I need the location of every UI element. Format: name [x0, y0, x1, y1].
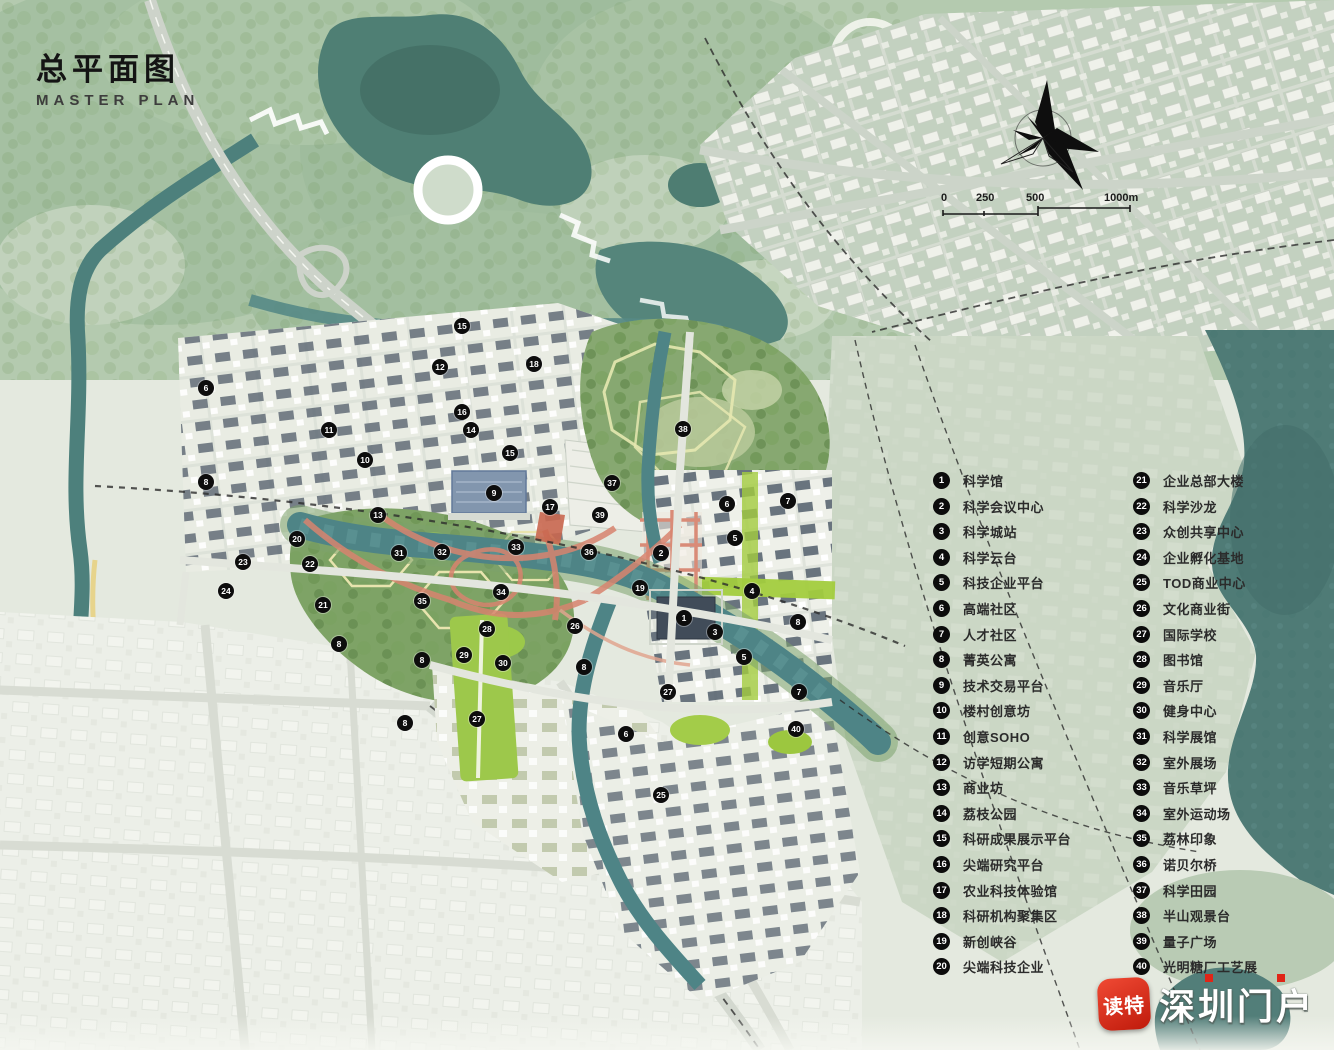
legend-number-badge: 8 — [933, 651, 950, 668]
legend-number-badge: 7 — [933, 626, 950, 643]
legend-number-badge: 26 — [1133, 600, 1150, 617]
legend-item: 14荔枝公园 — [933, 805, 1071, 822]
legend-number-badge: 4 — [933, 549, 950, 566]
legend-number-badge: 14 — [933, 805, 950, 822]
legend-column-right: 21企业总部大楼22科学沙龙23众创共享中心24企业孵化基地25TOD商业中心2… — [1133, 472, 1258, 975]
legend-number-badge: 35 — [1133, 830, 1150, 847]
legend-number-badge: 24 — [1133, 549, 1150, 566]
legend-item: 31科学展馆 — [1133, 728, 1258, 745]
legend-item-label: TOD商业中心 — [1163, 573, 1246, 592]
legend-item-label: 诺贝尔桥 — [1163, 855, 1217, 874]
legend-item-label: 国际学校 — [1163, 625, 1217, 644]
legend-number-badge: 11 — [933, 728, 950, 745]
legend-item: 19新创峡谷 — [933, 933, 1071, 950]
legend-item: 21企业总部大楼 — [1133, 472, 1258, 489]
legend-number-badge: 25 — [1133, 574, 1150, 591]
legend-number-badge: 33 — [1133, 779, 1150, 796]
legend-item: 9技术交易平台 — [933, 677, 1071, 694]
legend-item: 34室外运动场 — [1133, 805, 1258, 822]
page-subtitle: MASTER PLAN — [36, 92, 199, 109]
legend-item-label: 企业孵化基地 — [1163, 548, 1244, 567]
legend-item: 35荔林印象 — [1133, 830, 1258, 847]
legend-number-badge: 36 — [1133, 856, 1150, 873]
legend-item-label: 科技企业平台 — [963, 573, 1044, 592]
legend-item-label: 企业总部大楼 — [1163, 471, 1244, 490]
legend-number-badge: 22 — [1133, 498, 1150, 515]
legend-item: 11创意SOHO — [933, 728, 1071, 745]
master-plan-canvas: 总平面图 MASTER PLAN 0 250 500 1000m 1科学馆2科学… — [0, 0, 1334, 1050]
legend-number-badge: 37 — [1133, 882, 1150, 899]
page-title: 总平面图 — [36, 44, 199, 89]
legend-item-label: 菁英公寓 — [963, 650, 1017, 669]
compass-icon — [985, 78, 1105, 203]
legend-number-badge: 9 — [933, 677, 950, 694]
legend-number-badge: 19 — [933, 933, 950, 950]
scale-bar: 0 250 500 1000m — [938, 192, 1150, 220]
legend-item: 23众创共享中心 — [1133, 523, 1258, 540]
scale-label-500: 500 — [1026, 192, 1044, 204]
legend-item-label: 农业科技体验馆 — [963, 881, 1058, 900]
scale-bar-line — [938, 204, 1138, 218]
legend-item: 28图书馆 — [1133, 651, 1258, 668]
watermark-accent-square — [1277, 974, 1285, 982]
legend-number-badge: 1 — [933, 472, 950, 489]
legend-item-label: 科学田园 — [1163, 881, 1217, 900]
scale-label-0: 0 — [941, 192, 947, 204]
legend-item: 3科学城站 — [933, 523, 1071, 540]
legend-item-label: 技术交易平台 — [963, 676, 1044, 695]
legend-item: 18科研机构聚集区 — [933, 907, 1071, 924]
legend-item: 4科学云台 — [933, 549, 1071, 566]
legend-item: 30健身中心 — [1133, 702, 1258, 719]
legend-item-label: 访学短期公寓 — [963, 753, 1044, 772]
legend-item: 1科学馆 — [933, 472, 1071, 489]
legend-number-badge: 2 — [933, 498, 950, 515]
legend-item: 12访学短期公寓 — [933, 754, 1071, 771]
legend-item: 39量子广场 — [1133, 933, 1258, 950]
legend-item: 24企业孵化基地 — [1133, 549, 1258, 566]
legend-item-label: 荔林印象 — [1163, 829, 1217, 848]
legend-item-label: 科学馆 — [963, 471, 1004, 490]
scale-label-1000: 1000m — [1104, 192, 1138, 204]
legend-item: 25TOD商业中心 — [1133, 574, 1258, 591]
legend-item-label: 科学云台 — [963, 548, 1017, 567]
legend-number-badge: 32 — [1133, 754, 1150, 771]
legend-item-label: 音乐厅 — [1163, 676, 1204, 695]
legend-item: 8菁英公寓 — [933, 651, 1071, 668]
legend-number-badge: 30 — [1133, 702, 1150, 719]
legend-item: 29音乐厅 — [1133, 677, 1258, 694]
legend-item-label: 科学会议中心 — [963, 497, 1044, 516]
legend-number-badge: 20 — [933, 958, 950, 975]
watermark: 读特 深圳门户 — [1098, 978, 1315, 1030]
legend-number-badge: 40 — [1133, 958, 1150, 975]
legend-item-label: 科研机构聚集区 — [963, 906, 1058, 925]
legend-number-badge: 21 — [1133, 472, 1150, 489]
legend-item: 22科学沙龙 — [1133, 498, 1258, 515]
legend-item: 20尖端科技企业 — [933, 958, 1071, 975]
legend-number-badge: 28 — [1133, 651, 1150, 668]
legend-item: 10楼村创意坊 — [933, 702, 1071, 719]
legend-item: 2科学会议中心 — [933, 498, 1071, 515]
legend-item-label: 新创峡谷 — [963, 932, 1017, 951]
legend-item: 36诺贝尔桥 — [1133, 856, 1258, 873]
legend-column-left: 1科学馆2科学会议中心3科学城站4科学云台5科技企业平台6高端社区7人才社区8菁… — [933, 472, 1071, 975]
legend-number-badge: 23 — [1133, 523, 1150, 540]
legend-number-badge: 12 — [933, 754, 950, 771]
legend-number-badge: 27 — [1133, 626, 1150, 643]
legend-item: 26文化商业街 — [1133, 600, 1258, 617]
legend-item-label: 科学展馆 — [1163, 727, 1217, 746]
legend-item-label: 楼村创意坊 — [963, 701, 1031, 720]
legend-item-label: 高端社区 — [963, 599, 1017, 618]
legend-item: 7人才社区 — [933, 626, 1071, 643]
legend-number-badge: 31 — [1133, 728, 1150, 745]
legend-item: 13商业坊 — [933, 779, 1071, 796]
legend-item-label: 科研成果展示平台 — [963, 829, 1071, 848]
watermark-site-name: 深圳门户 — [1159, 978, 1315, 1030]
legend-number-badge: 39 — [1133, 933, 1150, 950]
legend-item-label: 尖端科技企业 — [963, 957, 1044, 976]
legend-number-badge: 34 — [1133, 805, 1150, 822]
legend-item: 37科学田园 — [1133, 882, 1258, 899]
scale-label-250: 250 — [976, 192, 994, 204]
legend-number-badge: 18 — [933, 907, 950, 924]
legend-item-label: 半山观景台 — [1163, 906, 1231, 925]
legend-item-label: 科学城站 — [963, 522, 1017, 541]
legend-item: 33音乐草坪 — [1133, 779, 1258, 796]
legend-number-badge: 17 — [933, 882, 950, 899]
legend-number-badge: 29 — [1133, 677, 1150, 694]
dutenews-logo: 读特 — [1097, 977, 1152, 1032]
legend-number-badge: 3 — [933, 523, 950, 540]
legend-item-label: 人才社区 — [963, 625, 1017, 644]
dutenews-logo-text: 读特 — [1102, 988, 1145, 1019]
legend-item: 17农业科技体验馆 — [933, 882, 1071, 899]
legend-item: 5科技企业平台 — [933, 574, 1071, 591]
legend-item-label: 商业坊 — [963, 778, 1004, 797]
legend-item-label: 文化商业街 — [1163, 599, 1231, 618]
legend-item-label: 图书馆 — [1163, 650, 1204, 669]
watermark-site-text: 深圳门户 — [1159, 986, 1315, 1027]
legend-item-label: 量子广场 — [1163, 932, 1217, 951]
legend-item-label: 众创共享中心 — [1163, 522, 1244, 541]
legend-number-badge: 38 — [1133, 907, 1150, 924]
convention-center-building — [448, 471, 530, 520]
legend-item: 16尖端研究平台 — [933, 856, 1071, 873]
legend-item-label: 尖端研究平台 — [963, 855, 1044, 874]
legend-item-label: 室外运动场 — [1163, 804, 1231, 823]
legend-number-badge: 15 — [933, 830, 950, 847]
legend-item: 40光明糖厂工艺展 — [1133, 958, 1258, 975]
legend-item-label: 科学沙龙 — [1163, 497, 1217, 516]
legend-item: 15科研成果展示平台 — [933, 830, 1071, 847]
watermark-accent-square — [1205, 974, 1213, 982]
legend-item-label: 健身中心 — [1163, 701, 1217, 720]
legend-number-badge: 16 — [933, 856, 950, 873]
legend-item-label: 创意SOHO — [963, 727, 1030, 746]
legend-number-badge: 13 — [933, 779, 950, 796]
legend-number-badge: 5 — [933, 574, 950, 591]
legend-item: 32室外展场 — [1133, 754, 1258, 771]
legend-number-badge: 6 — [933, 600, 950, 617]
legend-item: 6高端社区 — [933, 600, 1071, 617]
legend-item: 27国际学校 — [1133, 626, 1258, 643]
legend-item-label: 室外展场 — [1163, 753, 1217, 772]
legend-item-label: 荔枝公园 — [963, 804, 1017, 823]
title-block: 总平面图 MASTER PLAN — [36, 44, 199, 109]
legend-item-label: 音乐草坪 — [1163, 778, 1217, 797]
legend-number-badge: 10 — [933, 702, 950, 719]
legend-item: 38半山观景台 — [1133, 907, 1258, 924]
